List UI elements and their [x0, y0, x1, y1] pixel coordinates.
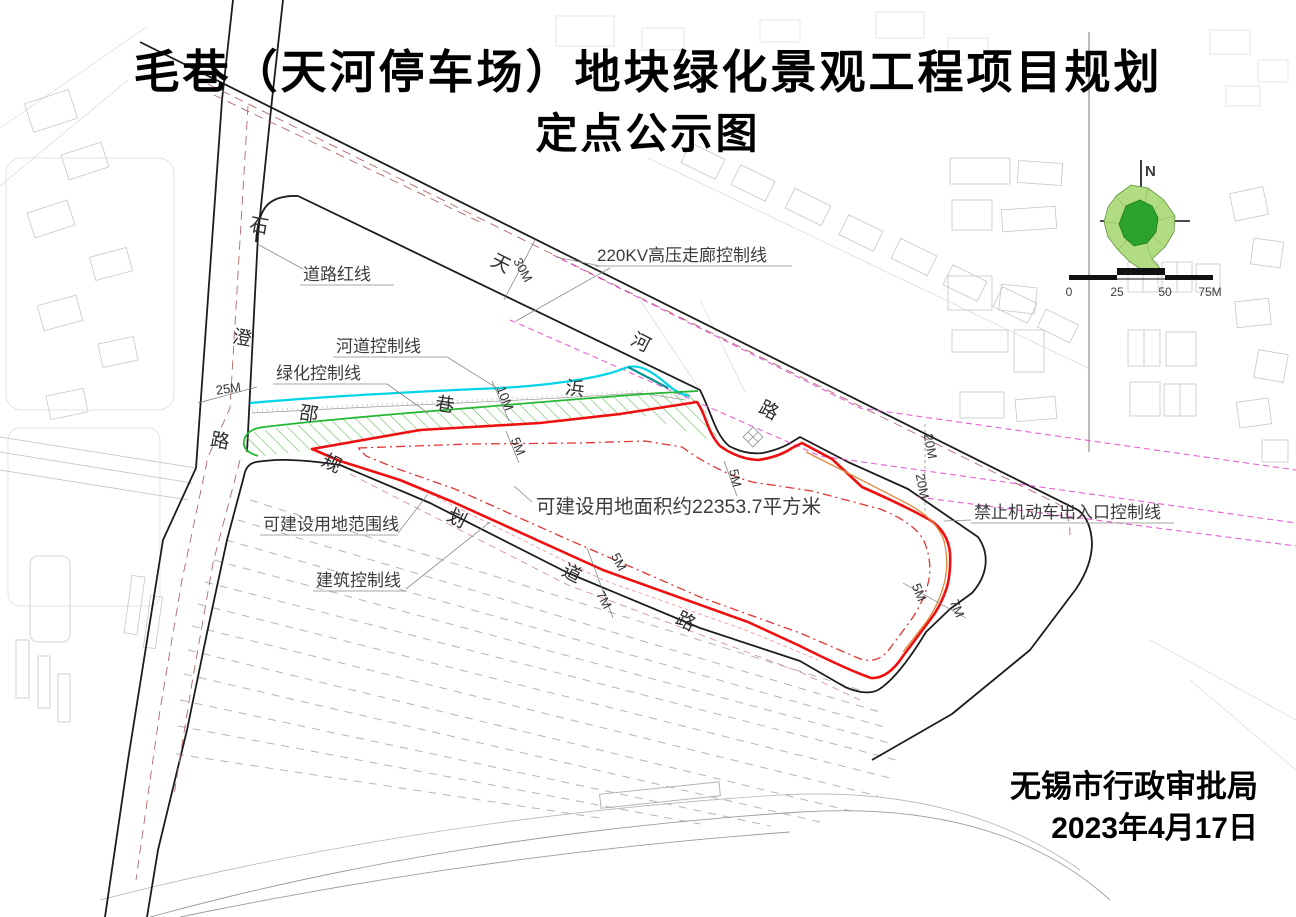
plan-map-canvas: 25M 30M 10M 5M 5M 20M 20M 5M 7M 5M 7M 道路…	[0, 0, 1296, 917]
creek-name-char-2: 浜	[564, 377, 586, 401]
road-shicheng-char-0: 石	[248, 215, 270, 239]
label-green-control-line: 绿化控制线	[276, 364, 361, 383]
dim-20m-lower: 20M	[913, 472, 932, 500]
label-buildable-boundary-line: 可建设用地范围线	[263, 515, 399, 534]
creek-name-char-1: 巷	[434, 393, 456, 417]
title-line-1: 毛巷（天河停车场）地块绿化景观工程项目规划	[134, 47, 1163, 98]
approval-stamp: 无锡市行政审批局 2023年4月17日	[1010, 769, 1258, 845]
dim-5m-east: 5M	[909, 581, 930, 603]
building-control-line	[358, 441, 930, 660]
north-label: N	[1145, 163, 1156, 180]
plan-map-sheet: 25M 30M 10M 5M 5M 20M 20M 5M 7M 5M 7M 道路…	[0, 0, 1296, 917]
scale-tick-50: 50	[1158, 285, 1172, 299]
label-hv-corridor-control-line: 220KV高压走廊控制线	[597, 246, 767, 265]
dim-7m-east: 7M	[947, 597, 968, 619]
road-planned-char-3: 路	[672, 608, 699, 636]
publish-date: 2023年4月17日	[1051, 812, 1258, 845]
title-line-2: 定点公示图	[535, 111, 760, 158]
road-tianhe-char-1: 河	[627, 329, 654, 357]
road-edge-shicheng-west	[105, 0, 233, 917]
dim-5m-road-south: 5M	[608, 550, 630, 573]
scale-tick-0: 0	[1066, 285, 1073, 299]
agency-name: 无锡市行政审批局	[1010, 769, 1258, 804]
label-buildable-area-note: 可建设用地面积约22353.7平方米	[536, 496, 821, 518]
scale-tick-75m: 75M	[1198, 285, 1221, 299]
label-building-control-line: 建筑控制线	[316, 571, 401, 590]
dim-5m-creek: 5M	[508, 435, 529, 457]
label-road-red-line: 道路红线	[303, 265, 371, 284]
dim-20m-upper: 20M	[921, 432, 940, 460]
road-tianhe-char-0: 天	[487, 250, 513, 277]
dim-5m-bay: 5M	[726, 468, 744, 489]
label-no-vehicle-access-line: 禁止机动车出入口控制线	[974, 503, 1161, 522]
road-planned-char-2: 道	[558, 560, 585, 588]
label-river-control-line: 河道控制线	[336, 337, 421, 356]
scale-tick-25: 25	[1110, 285, 1124, 299]
dim-25m: 25M	[215, 379, 242, 397]
plot-boundary-group	[312, 402, 950, 678]
creek-name-char-0: 邵	[298, 403, 320, 426]
road-shicheng-char-1: 澄	[231, 326, 254, 351]
buildable-land-boundary-line	[312, 402, 950, 678]
sheet-title: 毛巷（天河停车场）地块绿化景观工程项目规划 定点公示图	[134, 47, 1163, 158]
road-shicheng-char-2: 路	[209, 429, 232, 454]
road-tianhe-char-2: 路	[755, 397, 782, 425]
